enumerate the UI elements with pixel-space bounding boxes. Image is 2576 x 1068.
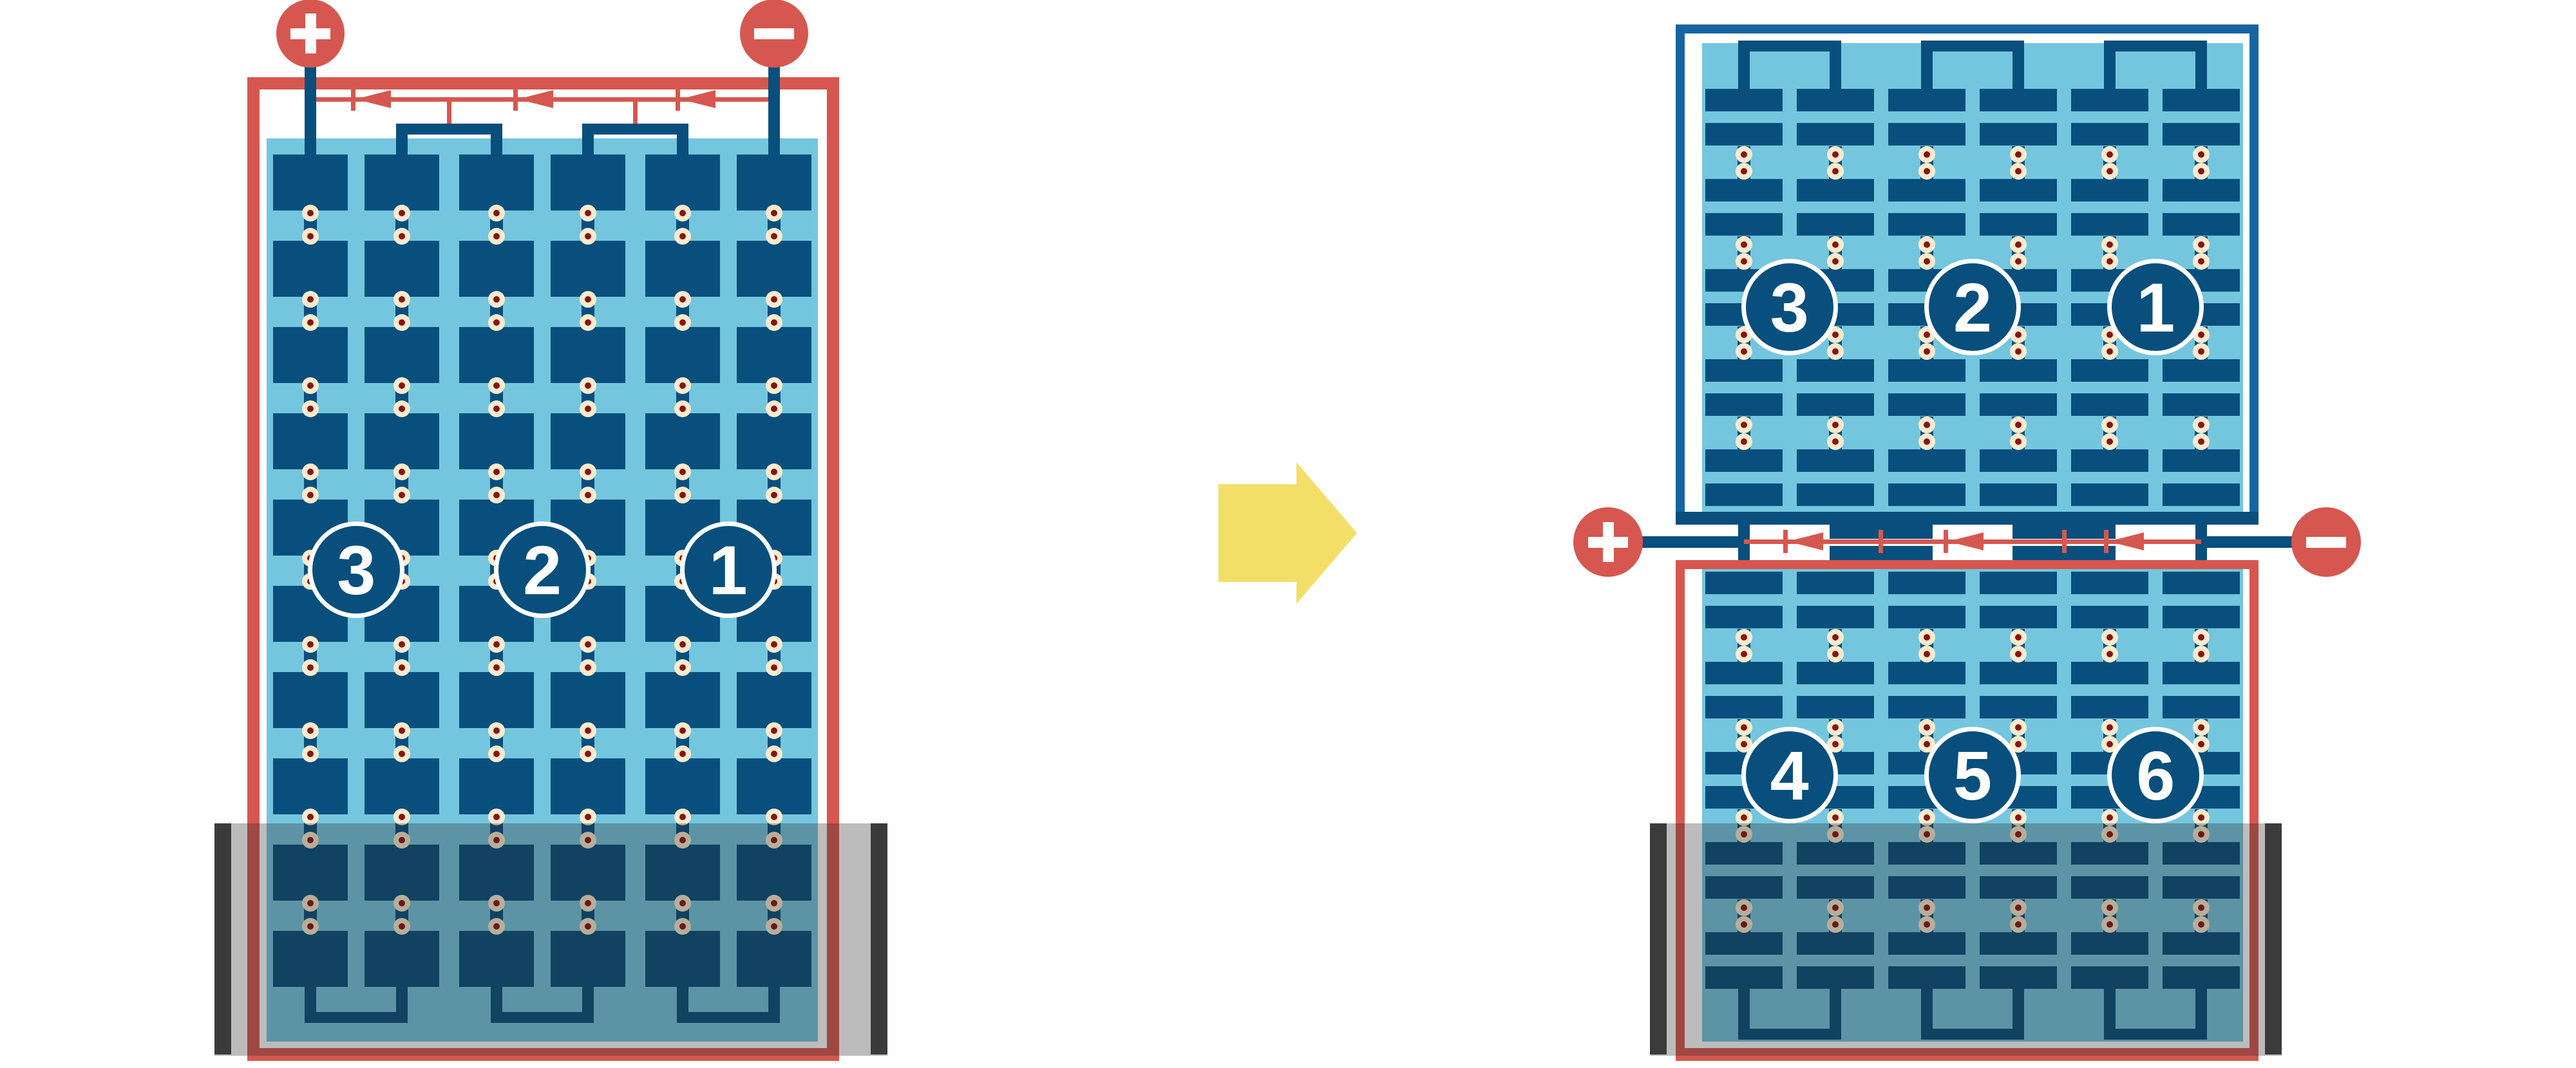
solder-dot-core <box>1741 724 1747 731</box>
solder-dot-core <box>679 319 686 326</box>
solar-cell <box>1888 179 1965 201</box>
solder-dot-core <box>2015 241 2022 248</box>
string-number-label: 6 <box>2136 735 2175 816</box>
solder-dot-icon <box>580 745 596 762</box>
solder-dot-icon <box>674 228 691 245</box>
solder-dot-core <box>679 727 686 734</box>
solder-dot-icon <box>1918 253 1935 270</box>
solder-dot-icon <box>2010 163 2027 180</box>
string-jumper-leg <box>1738 41 1750 89</box>
solder-dot-icon <box>488 291 505 308</box>
solder-dot-core <box>493 233 500 239</box>
solar-cell <box>1797 606 1874 628</box>
solder-dot-icon <box>1827 646 1844 662</box>
solar-cell <box>2163 696 2240 718</box>
solar-cell <box>273 155 348 211</box>
solar-cell <box>1888 213 1965 236</box>
solder-dot-icon <box>580 377 596 394</box>
solder-dot-core <box>585 727 591 734</box>
bypass-diode-triangle <box>355 90 391 108</box>
solder-dot-core <box>399 469 405 475</box>
string-jumper-leg <box>2195 41 2207 89</box>
solder-dot-icon <box>2010 417 2027 433</box>
solder-dot-core <box>585 382 591 389</box>
solar-cell <box>1797 393 1874 416</box>
solder-dot-core <box>1832 422 1839 428</box>
solder-dot-icon <box>1736 719 1752 736</box>
solder-dot-core <box>771 210 777 216</box>
solar-cell <box>1888 572 1965 594</box>
solder-dot-icon <box>1827 163 1844 180</box>
solar-cell <box>551 758 625 814</box>
solar-cell <box>2071 359 2148 382</box>
solder-dot-icon <box>1827 253 1844 270</box>
solar-cell <box>2071 213 2148 236</box>
solder-dot-core <box>307 319 314 326</box>
solder-dot-core <box>307 751 314 757</box>
solder-dot-core <box>1832 168 1839 174</box>
solar-cell <box>551 241 625 297</box>
string-jumper-leg <box>1921 41 1933 89</box>
solder-dot-core <box>1741 741 1747 747</box>
solder-dot-core <box>2107 438 2113 445</box>
solder-dot-icon <box>488 745 505 762</box>
solder-dot-core <box>585 319 591 326</box>
solder-dot-core <box>1924 348 1930 355</box>
solar-cell <box>1980 449 2057 472</box>
solder-dot-icon <box>580 464 596 480</box>
solder-dot-core <box>399 727 405 734</box>
string-number-badge: 2 <box>1924 259 2021 355</box>
solder-dot-core <box>1741 168 1747 174</box>
solder-dot-icon <box>1827 417 1844 433</box>
solder-dot-icon <box>766 377 782 394</box>
solar-cell <box>737 413 811 469</box>
solder-dot-icon <box>674 659 691 676</box>
solder-dot-core <box>1924 724 1930 731</box>
solar-cell <box>459 672 534 728</box>
solar-cell <box>459 241 534 297</box>
solder-dot-icon <box>580 722 596 739</box>
solder-dot-core <box>1832 741 1839 747</box>
solder-dot-core <box>771 319 777 326</box>
solar-cell <box>645 155 720 211</box>
solar-cell <box>273 327 348 383</box>
solar-cell <box>645 413 720 469</box>
solar-cell <box>1797 662 1874 684</box>
solar-cell <box>365 155 439 211</box>
solder-dot-core <box>493 382 500 389</box>
solar-cell <box>1980 572 2057 594</box>
solder-dot-core <box>679 233 686 239</box>
solder-dot-icon <box>488 487 505 503</box>
solar-cell <box>1797 179 1874 201</box>
solder-dot-icon <box>766 745 782 762</box>
solder-dot-core <box>771 664 777 671</box>
solder-dot-icon <box>766 228 782 245</box>
solar-cell <box>2163 449 2240 472</box>
solder-dot-core <box>1741 332 1747 338</box>
solar-cell <box>1888 123 1965 145</box>
solder-dot-core <box>399 382 405 389</box>
solder-dot-icon <box>2010 719 2027 736</box>
terminal-wire <box>2201 536 2296 548</box>
string-number-badge: 2 <box>494 521 591 618</box>
string-jumper-top <box>1921 41 2024 52</box>
solder-dot-core <box>585 233 591 239</box>
solder-dot-core <box>2107 151 2113 158</box>
solder-dot-core <box>493 210 500 216</box>
solder-dot-icon <box>580 487 596 503</box>
string-number-label: 4 <box>1770 735 1809 816</box>
solder-dot-core <box>1832 348 1839 355</box>
solder-dot-icon <box>674 636 691 653</box>
bypass-diode-triangle <box>1788 532 1823 550</box>
solder-dot-core <box>1832 724 1839 731</box>
solder-dot-icon <box>488 464 505 480</box>
solar-cell <box>1705 696 1783 718</box>
solar-cell <box>459 327 534 383</box>
solder-dot-core <box>2198 438 2204 445</box>
shade-edge-bar <box>1650 823 1667 1054</box>
solder-dot-core <box>493 492 500 498</box>
solar-cell <box>1797 696 1874 718</box>
solder-dot-icon <box>1918 646 1935 662</box>
solar-cell <box>1797 449 1874 472</box>
solder-dot-core <box>1832 151 1839 158</box>
solder-dot-core <box>399 233 405 239</box>
solder-dot-icon <box>2010 146 2027 163</box>
solar-cell <box>2163 393 2240 416</box>
solder-dot-core <box>1924 168 1930 174</box>
solar-cell <box>1980 359 2057 382</box>
solder-dot-core <box>585 492 591 498</box>
solder-dot-core <box>493 641 500 648</box>
positive-terminal <box>1573 507 1643 577</box>
solder-dot-icon <box>1827 343 1844 360</box>
solder-dot-core <box>399 641 405 648</box>
solder-dot-core <box>307 210 314 216</box>
solder-dot-core <box>307 296 314 303</box>
module-frame-right <box>2249 24 2259 525</box>
solder-dot-icon <box>1827 433 1844 450</box>
solder-dot-core <box>307 641 314 648</box>
solar-cell <box>365 327 439 383</box>
string-number-badge: 5 <box>1924 727 2021 823</box>
solar-cell <box>1705 606 1783 628</box>
solder-dot-core <box>307 469 314 475</box>
solar-cell <box>2071 662 2148 684</box>
bypass-diode-icon <box>676 88 680 111</box>
solar-cell <box>1797 483 1874 506</box>
string-jumper-leg <box>491 124 502 155</box>
solder-dot-core <box>1832 241 1839 248</box>
solder-dot-core <box>2015 422 2022 428</box>
string-number-badge: 6 <box>2107 727 2204 823</box>
solder-dot-core <box>585 814 591 820</box>
solar-cell <box>1705 213 1783 236</box>
shade-edge-bar <box>871 823 887 1054</box>
solar-cell <box>459 758 534 814</box>
solder-dot-icon <box>1918 629 1935 646</box>
solder-dot-core <box>2198 241 2204 248</box>
solder-dot-core <box>2015 814 2022 821</box>
solar-cell <box>1888 606 1965 628</box>
solder-dot-icon <box>580 205 596 221</box>
solar-cell <box>1888 449 1965 472</box>
solder-dot-core <box>679 641 686 648</box>
solar-cell <box>1705 123 1783 145</box>
solar-cell <box>1980 179 2057 201</box>
solder-dot-core <box>1741 651 1747 657</box>
solar-cell <box>2163 359 2240 382</box>
solder-dot-core <box>771 751 777 757</box>
minus-icon <box>754 28 794 39</box>
solder-dot-core <box>585 641 591 648</box>
solder-dot-core <box>399 319 405 326</box>
solder-dot-core <box>1924 814 1930 821</box>
solder-dot-core <box>2015 151 2022 158</box>
solder-dot-icon <box>766 659 782 676</box>
solar-cell <box>2071 483 2148 506</box>
solder-dot-core <box>493 296 500 303</box>
solder-dot-core <box>679 751 686 757</box>
solder-dot-icon <box>1736 236 1752 253</box>
solar-cell <box>1888 696 1965 718</box>
solder-dot-core <box>2015 741 2022 747</box>
solder-dot-icon <box>1736 146 1752 163</box>
solder-dot-core <box>493 814 500 820</box>
solder-dot-core <box>679 814 686 820</box>
solar-cell <box>1797 359 1874 382</box>
solder-dot-core <box>771 492 777 498</box>
solar-cell <box>2163 89 2240 111</box>
solar-cell <box>273 413 348 469</box>
solar-cell <box>2163 483 2240 506</box>
solder-dot-core <box>399 210 405 216</box>
solder-dot-core <box>2198 814 2204 821</box>
solar-cell <box>365 758 439 814</box>
solder-dot-icon <box>2010 629 2027 646</box>
solder-dot-core <box>1832 438 1839 445</box>
solar-cell <box>1705 179 1783 201</box>
solar-cell <box>1797 572 1874 594</box>
solder-dot-core <box>1832 634 1839 641</box>
solar-cell <box>1705 393 1783 416</box>
solar-cell <box>1888 89 1965 111</box>
minus-icon <box>2306 537 2346 548</box>
terminal-wire <box>305 63 316 155</box>
diode-junction-tick <box>2062 530 2067 553</box>
solder-dot-icon <box>580 228 596 245</box>
solder-dot-icon <box>674 291 691 308</box>
solder-dot-core <box>771 469 777 475</box>
solder-dot-icon <box>1736 163 1752 180</box>
solar-cell <box>1797 123 1874 145</box>
solder-dot-core <box>679 664 686 671</box>
solder-dot-core <box>1924 422 1930 428</box>
solder-dot-core <box>771 406 777 412</box>
solar-cell <box>737 758 811 814</box>
solder-dot-icon <box>1736 629 1752 646</box>
solder-dot-core <box>1924 634 1930 641</box>
solder-dot-core <box>307 727 314 734</box>
solder-dot-core <box>585 406 591 412</box>
solar-cell <box>2071 572 2148 594</box>
solder-dot-core <box>1741 814 1747 821</box>
string-jumper-top <box>582 124 688 135</box>
solar-cell <box>365 672 439 728</box>
solar-cell <box>1705 483 1783 506</box>
solder-dot-core <box>585 210 591 216</box>
string-number-badge: 4 <box>1741 727 1838 823</box>
solder-dot-icon <box>1918 163 1935 180</box>
string-number-badge: 3 <box>308 521 404 618</box>
solder-dot-core <box>307 492 314 498</box>
string-number-badge: 1 <box>2107 259 2204 355</box>
solder-dot-core <box>679 210 686 216</box>
solder-dot-icon <box>1827 236 1844 253</box>
solder-dot-icon <box>1827 146 1844 163</box>
solar-cell <box>2071 123 2148 145</box>
solder-dot-icon <box>580 400 596 417</box>
junction-drop-wire <box>447 99 451 124</box>
solder-dot-core <box>2107 651 2113 657</box>
solder-dot-core <box>2198 348 2204 355</box>
diode-junction-tick <box>1879 530 1883 553</box>
solder-dot-core <box>2198 651 2204 657</box>
solder-dot-icon <box>674 464 691 480</box>
solder-dot-core <box>679 469 686 475</box>
solar-cell <box>2163 606 2240 628</box>
solder-dot-core <box>493 319 500 326</box>
solder-dot-core <box>1832 332 1839 338</box>
bypass-diode-triangle <box>2108 532 2144 550</box>
solar-cell <box>2071 449 2148 472</box>
solar-cell <box>1980 89 2057 111</box>
solder-dot-core <box>1924 651 1930 657</box>
solar-cell <box>645 672 720 728</box>
solder-dot-core <box>1741 151 1747 158</box>
solder-dot-core <box>399 664 405 671</box>
plus-icon <box>305 14 316 53</box>
solar-cell <box>737 327 811 383</box>
solar-cell <box>1980 696 2057 718</box>
module-frame-top <box>1676 24 2259 33</box>
shade-edge-bar <box>214 823 231 1054</box>
solder-dot-core <box>679 382 686 389</box>
solder-dot-core <box>2107 724 2113 731</box>
negative-terminal <box>740 0 808 68</box>
solder-dot-icon <box>2010 646 2027 662</box>
solar-cell <box>551 155 625 211</box>
string-number-label: 1 <box>2136 267 2175 348</box>
solder-dot-icon <box>488 636 505 653</box>
solder-dot-core <box>771 233 777 239</box>
solar-cell <box>737 155 811 211</box>
module-frame-top <box>247 77 839 89</box>
solar-cell <box>459 155 534 211</box>
string-number-label: 5 <box>1953 735 1992 816</box>
solar-cell <box>1980 606 2057 628</box>
solder-dot-icon <box>2010 253 2027 270</box>
solder-dot-core <box>771 814 777 820</box>
solder-dot-core <box>771 382 777 389</box>
solder-dot-core <box>771 641 777 648</box>
solar-cell <box>459 413 534 469</box>
solder-dot-icon <box>488 722 505 739</box>
solder-dot-core <box>307 233 314 239</box>
solder-dot-core <box>771 727 777 734</box>
solder-dot-core <box>2107 741 2113 747</box>
solder-dot-icon <box>674 722 691 739</box>
solder-dot-icon <box>766 400 782 417</box>
junction-drop-wire <box>633 99 638 124</box>
solar-cell <box>551 672 625 728</box>
solar-cell <box>2071 89 2148 111</box>
negative-terminal <box>2291 507 2361 577</box>
solder-dot-icon <box>488 205 505 221</box>
solar-cell <box>365 413 439 469</box>
solder-dot-icon <box>766 291 782 308</box>
solar-cell <box>737 672 811 728</box>
solder-dot-core <box>2015 724 2022 731</box>
right-arrow-icon <box>1218 462 1357 604</box>
module-frame-top <box>1676 560 2259 569</box>
bypass-diode-triangle <box>518 90 553 108</box>
bypass-diode-icon <box>1944 530 1948 553</box>
solar-cell <box>1705 662 1783 684</box>
shade-edge-bar <box>2265 823 2282 1054</box>
solder-dot-core <box>1924 332 1930 338</box>
solder-dot-icon <box>766 314 782 331</box>
bypass-diode-icon <box>513 88 518 111</box>
string-jumper-leg <box>677 124 688 155</box>
solar-cell <box>1797 89 1874 111</box>
terminal-wire <box>1636 536 1744 548</box>
diagram-canvas: 321321456 <box>0 0 2576 1068</box>
solder-dot-icon <box>580 636 596 653</box>
solder-dot-core <box>2198 422 2204 428</box>
solder-dot-core <box>2015 168 2022 174</box>
solder-dot-icon <box>488 659 505 676</box>
solder-dot-core <box>2107 258 2113 265</box>
solar-cell <box>365 241 439 297</box>
solder-dot-core <box>307 406 314 412</box>
solder-dot-icon <box>1918 236 1935 253</box>
solder-dot-icon <box>1736 646 1752 662</box>
solder-dot-icon <box>766 205 782 221</box>
solder-dot-core <box>1924 438 1930 445</box>
solar-cell <box>2163 662 2240 684</box>
solder-dot-icon <box>1918 433 1935 450</box>
solder-dot-core <box>2107 634 2113 641</box>
string-number-badge: 1 <box>680 521 777 618</box>
solder-dot-core <box>2198 741 2204 747</box>
positive-terminal <box>276 0 345 68</box>
solder-dot-core <box>1741 634 1747 641</box>
solder-dot-icon <box>580 314 596 331</box>
solder-dot-icon <box>674 745 691 762</box>
solder-dot-icon <box>2010 343 2027 360</box>
solar-cell <box>1797 213 1874 236</box>
solder-dot-icon <box>674 487 691 503</box>
solder-dot-core <box>307 664 314 671</box>
solder-dot-core <box>1924 151 1930 158</box>
solder-dot-core <box>493 727 500 734</box>
bypass-diode-icon <box>351 88 355 111</box>
solar-cell <box>2163 213 2240 236</box>
